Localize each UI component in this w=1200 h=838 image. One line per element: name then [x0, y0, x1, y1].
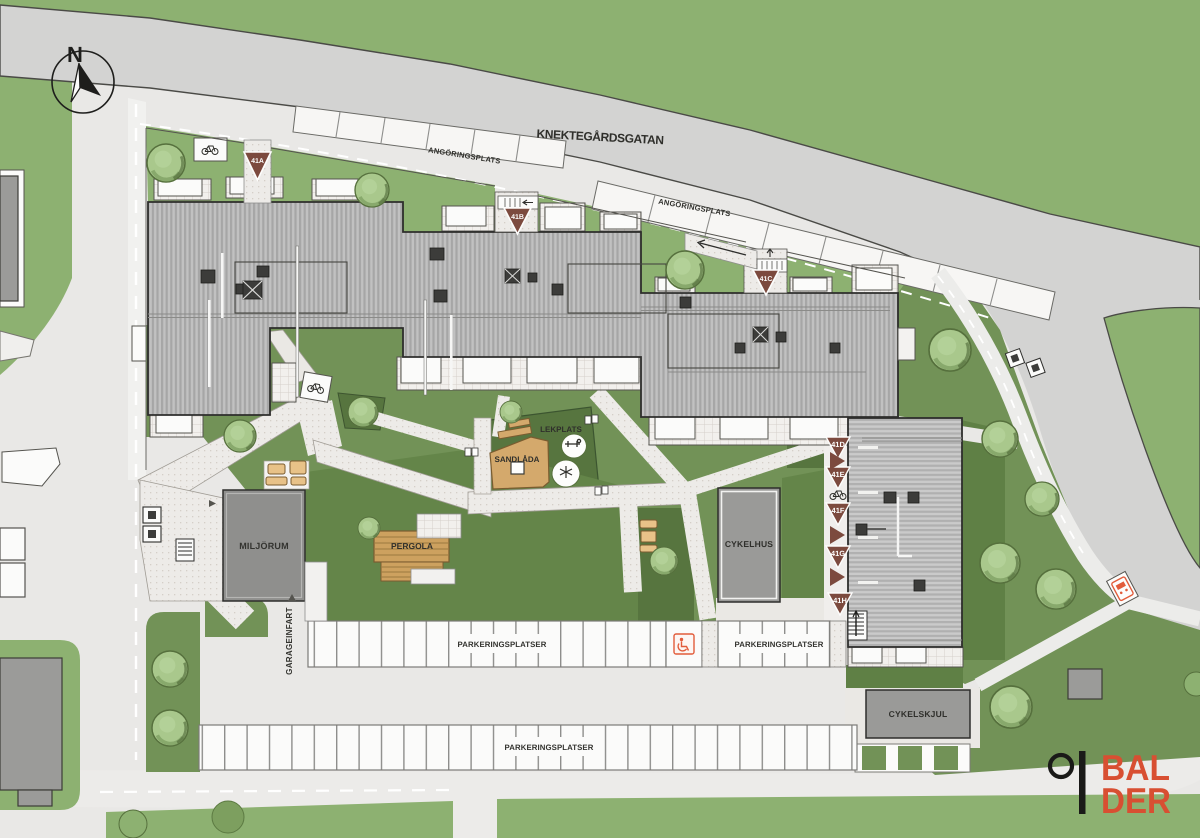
svg-text:41G: 41G — [831, 549, 845, 558]
svg-text:SANDLÅDA: SANDLÅDA — [495, 455, 540, 464]
svg-text:GARAGEINFART: GARAGEINFART — [285, 607, 294, 675]
svg-text:PARKERINGSPLATSER: PARKERINGSPLATSER — [735, 640, 824, 649]
svg-text:41E: 41E — [831, 470, 844, 479]
svg-text:41A: 41A — [251, 158, 264, 165]
svg-text:LEKPLATS: LEKPLATS — [540, 425, 582, 434]
svg-text:N: N — [67, 42, 83, 67]
svg-text:41H: 41H — [833, 596, 847, 605]
svg-text:PERGOLA: PERGOLA — [391, 541, 433, 551]
svg-text:PARKERINGSPLATSER: PARKERINGSPLATSER — [505, 743, 594, 752]
svg-text:MILJÖRUM: MILJÖRUM — [239, 541, 289, 551]
svg-text:CYKELHUS: CYKELHUS — [725, 539, 773, 549]
svg-text:DER: DER — [1101, 780, 1171, 821]
svg-text:41C: 41C — [760, 276, 773, 283]
svg-text:41D: 41D — [831, 440, 845, 449]
svg-text:PARKERINGSPLATSER: PARKERINGSPLATSER — [458, 640, 547, 649]
svg-text:41B: 41B — [511, 214, 524, 221]
svg-text:41F: 41F — [832, 506, 845, 515]
svg-text:CYKELSKJUL: CYKELSKJUL — [889, 709, 948, 719]
